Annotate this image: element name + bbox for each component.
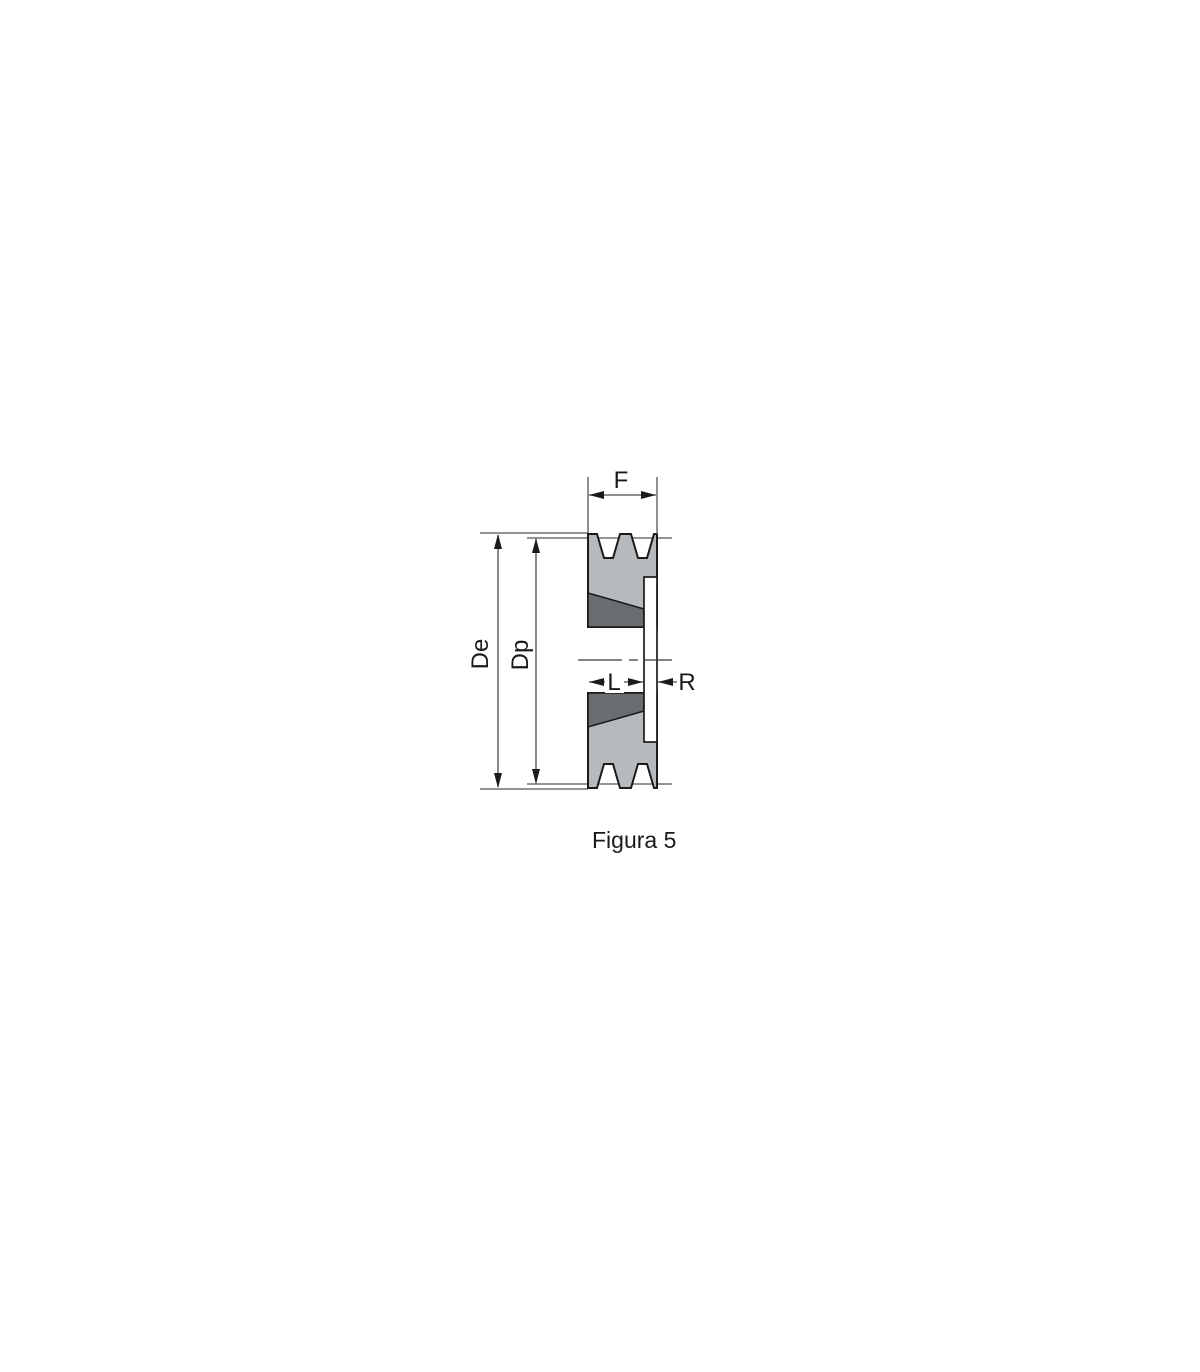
label-De: De — [467, 639, 494, 670]
pulley-cross-section-diagram: F De Dp L R F — [0, 0, 1200, 1372]
label-R: R — [678, 669, 695, 696]
label-Dp: Dp — [507, 640, 534, 671]
figure-caption: Figura 5 — [592, 827, 676, 853]
diagram-background — [0, 0, 1200, 1372]
label-L: L — [607, 669, 620, 696]
label-F: F — [614, 467, 629, 494]
page: F De Dp L R F — [0, 0, 1200, 1372]
